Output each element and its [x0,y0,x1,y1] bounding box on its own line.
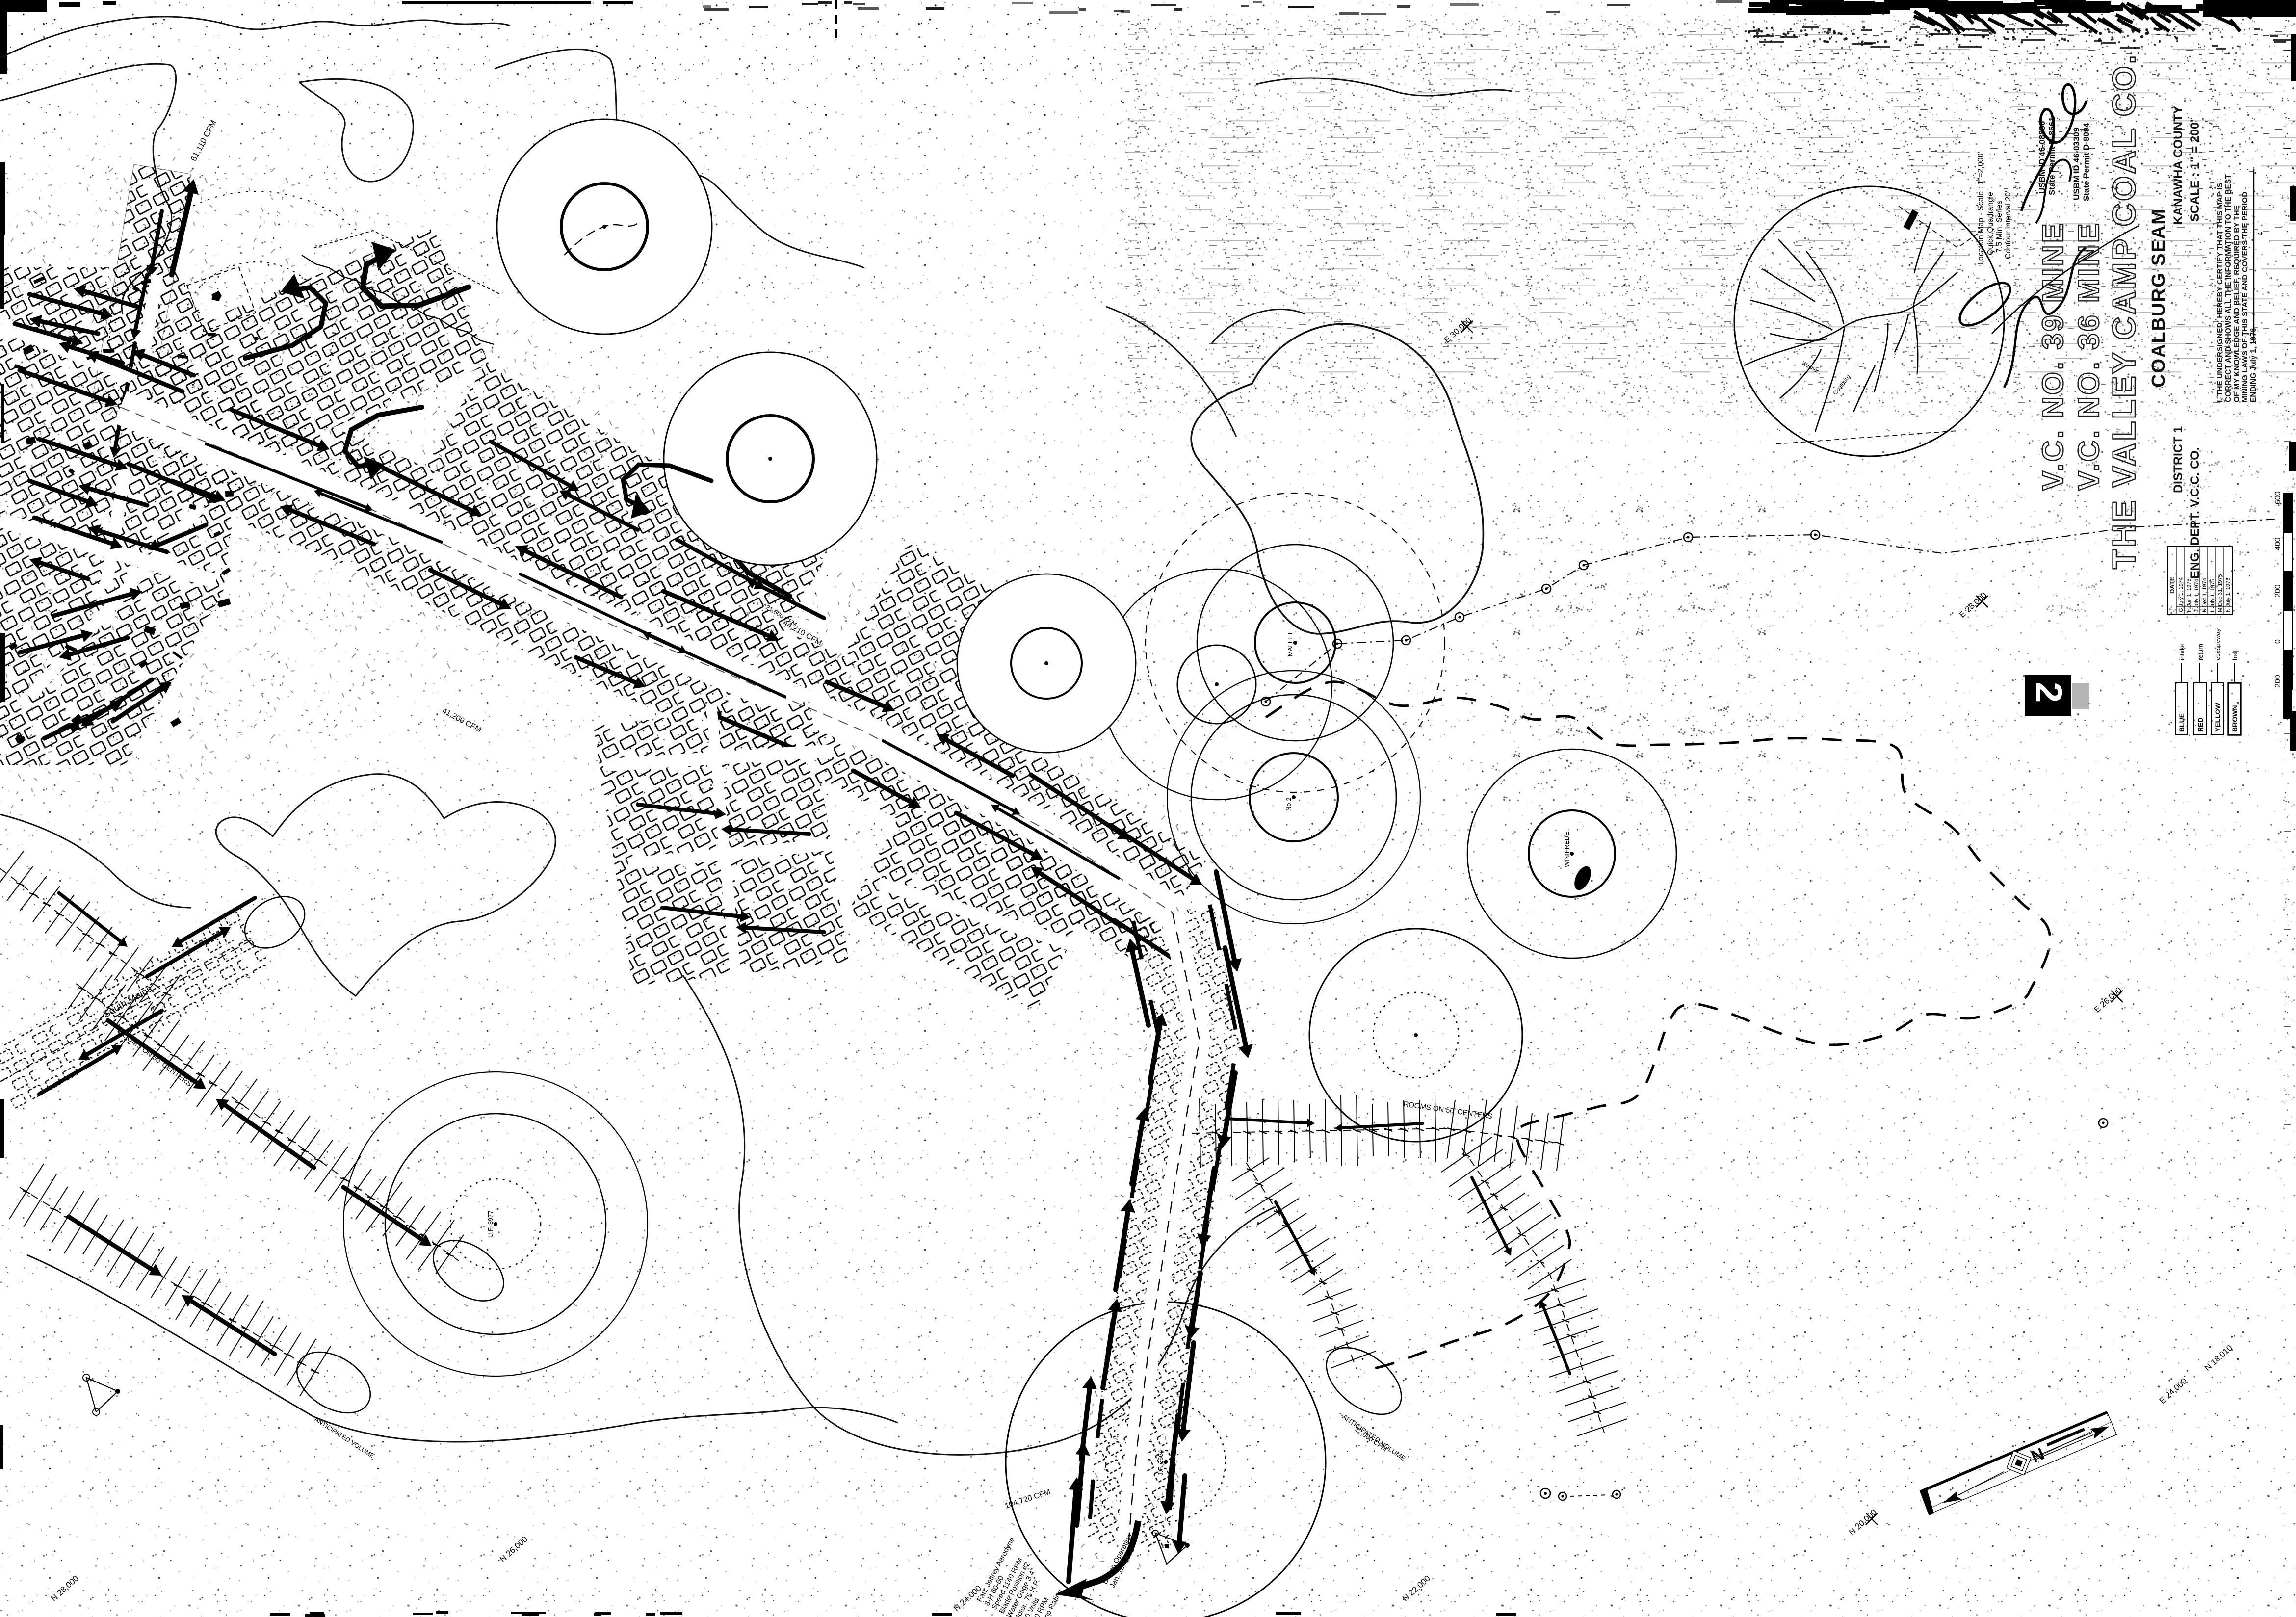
svg-text:MALLET: MALLET [1286,631,1294,656]
svg-text:600: 600 [2274,491,2282,504]
svg-text:escapeway: escapeway [2214,628,2221,660]
svg-text:USBM ID 46-03309: USBM ID 46-03309 [2072,128,2081,200]
svg-text:YELLOW: YELLOW [2214,702,2221,732]
svg-text:CORRECT AND SHOWS ALL THE INF: CORRECT AND SHOWS ALL THE INFORMATION TO… [2224,174,2233,402]
svg-text:COALBURG SEAM: COALBURG SEAM [2148,208,2169,388]
svg-text:H Jan 1, 1975: H Jan 1, 1975 [2186,579,2192,613]
svg-text:USBM ID 46-08886: USBM ID 46-08886 [2037,121,2047,194]
svg-text:U.F. 3977: U.F. 3977 [487,1210,494,1238]
svg-text:200: 200 [2274,584,2282,598]
svg-text:0: 0 [2274,639,2282,644]
svg-text:200: 200 [2274,675,2282,688]
svg-text:J July 1, 1974: J July 1, 1974 [2194,579,2200,612]
svg-text:State Permit D-8661: State Permit D-8661 [2047,117,2057,195]
svg-text:belt: belt [2231,650,2239,660]
svg-text:THE VALLEY CAMP COAL CO.: THE VALLEY CAMP COAL CO. [2106,53,2142,569]
svg-text:return: return [2197,644,2204,660]
svg-text:No 2: No 2 [1285,798,1292,811]
svg-text:MINING LAWS OF THIS STATE A: MINING LAWS OF THIS STATE AND COVERS THE… [2241,192,2249,402]
svg-text:OF MY KNOWLEDGE AND BELIEF,: OF MY KNOWLEDGE AND BELIEF, REQUIRED BY … [2233,205,2241,402]
svg-text:Quick Quadrangle: Quick Quadrangle [1986,192,1995,255]
svg-text:V.C. NO. 36 MINE: V.C. NO. 36 MINE [2072,221,2105,491]
svg-text:State Permit D-8094: State Permit D-8094 [2082,123,2091,201]
svg-text:Location Map - Scale : 1"=2,00: Location Map - Scale : 1"=2,000' [1977,152,1985,265]
svg-text:7.5 Min. Series: 7.5 Min. Series [1995,200,2004,253]
svg-text:intake: intake [2178,643,2186,660]
svg-text:L July 1, 1975: L July 1, 1975 [2210,579,2216,612]
svg-text:G July 1, 1974: G July 1, 1974 [2178,577,2184,612]
svg-text:SCALE : 1" = 200': SCALE : 1" = 200' [2188,119,2202,222]
svg-text:K Dec 1, 1974: K Dec 1, 1974 [2202,578,2208,612]
svg-text:DATE: DATE [2168,576,2176,594]
svg-text:400: 400 [2274,537,2282,550]
svg-text:I, THE UNDERSIGNED, HEREBY CER: I, THE UNDERSIGNED, HEREBY CERTIFY THAT … [2216,183,2224,402]
svg-text:BROWN: BROWN [2231,705,2239,732]
svg-text:KANAWHA COUNTY: KANAWHA COUNTY [2171,106,2185,225]
svg-text:WINIFREDE: WINIFREDE [1563,832,1570,867]
svg-text:BLUE: BLUE [2178,713,2186,732]
svg-text:V.C. NO. 39 MINE: V.C. NO. 39 MINE [2036,221,2069,491]
svg-text:DISTRICT 1: DISTRICT 1 [2171,426,2185,493]
svg-text:Contour Interval 20': Contour Interval 20' [2004,191,2012,259]
svg-text:N July 1, 1976: N July 1, 1976 [2225,578,2231,612]
svg-text:RED: RED [2196,717,2204,732]
svg-text:4: 4 [2256,232,2264,235]
svg-text:2: 2 [2028,682,2069,703]
